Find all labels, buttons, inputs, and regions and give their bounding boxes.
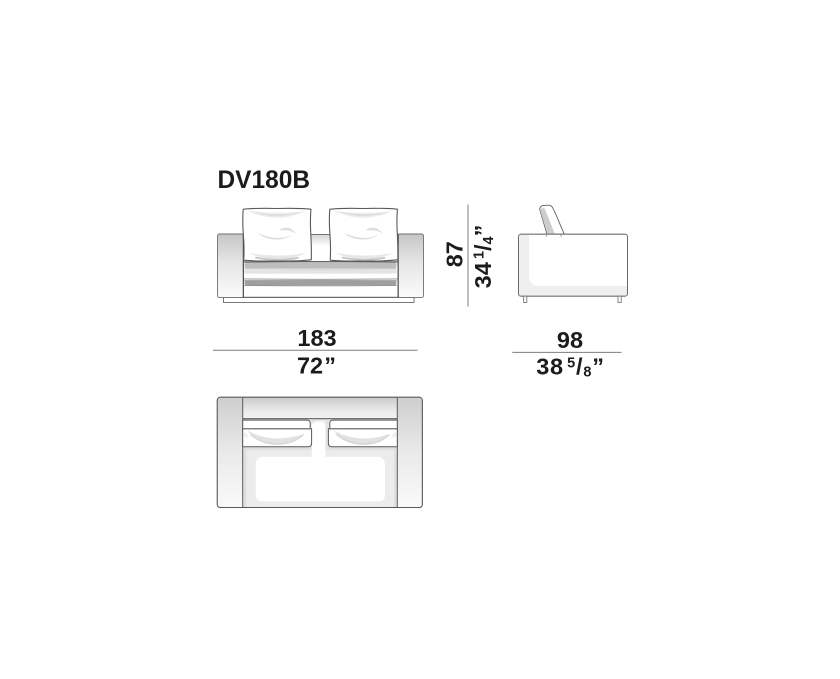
svg-text:341/4”: 341/4” (470, 225, 497, 289)
svg-text:385/8”: 385/8” (536, 354, 605, 381)
svg-text:183: 183 (297, 325, 336, 351)
svg-text:72”: 72” (297, 353, 336, 379)
svg-text:87: 87 (441, 241, 467, 267)
svg-text:DV180B: DV180B (218, 167, 311, 194)
svg-text:98: 98 (557, 327, 583, 353)
